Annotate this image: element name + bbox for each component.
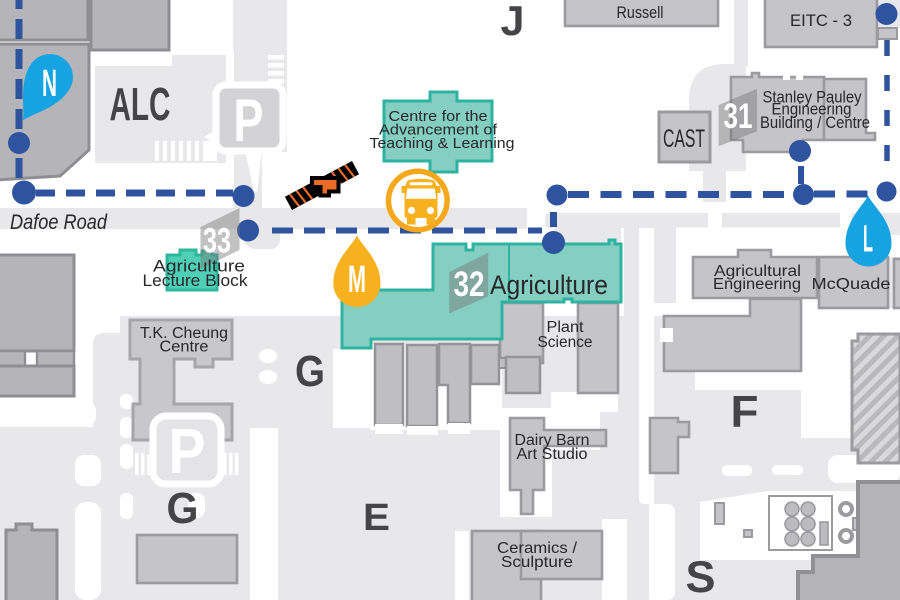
svg-text:Lecture Block: Lecture Block	[143, 271, 249, 290]
svg-text:L: L	[863, 219, 873, 261]
svg-text:Science: Science	[538, 334, 593, 351]
svg-text:Sculpture: Sculpture	[501, 554, 573, 571]
svg-text:31: 31	[724, 97, 753, 136]
svg-text:EITC - 3: EITC - 3	[790, 11, 852, 30]
svg-text:Engineering: Engineering	[713, 276, 801, 293]
svg-text:M: M	[348, 259, 366, 301]
svg-text:N: N	[42, 63, 57, 105]
svg-text:CAST: CAST	[663, 125, 705, 153]
svg-text:Building / Centre: Building / Centre	[760, 114, 870, 132]
svg-text:S: S	[686, 553, 716, 600]
svg-text:P: P	[234, 87, 264, 154]
svg-text:E: E	[363, 497, 390, 539]
svg-text:Teaching & Learning: Teaching & Learning	[370, 135, 515, 152]
svg-text:Centre: Centre	[160, 339, 209, 356]
svg-text:Art Studio: Art Studio	[517, 446, 588, 463]
svg-text:J: J	[501, 0, 525, 44]
svg-text:F: F	[731, 388, 759, 437]
svg-text:Russell: Russell	[617, 4, 664, 22]
svg-text:ALC: ALC	[110, 78, 171, 130]
svg-text:Dafoe Road: Dafoe Road	[10, 211, 108, 234]
svg-text:G: G	[295, 347, 325, 396]
svg-text:G: G	[167, 484, 199, 533]
svg-text:P: P	[169, 415, 206, 487]
svg-text:32: 32	[454, 265, 485, 304]
svg-text:Agriculture: Agriculture	[490, 270, 608, 300]
svg-text:33: 33	[203, 222, 231, 261]
svg-text:McQuade: McQuade	[812, 276, 891, 293]
